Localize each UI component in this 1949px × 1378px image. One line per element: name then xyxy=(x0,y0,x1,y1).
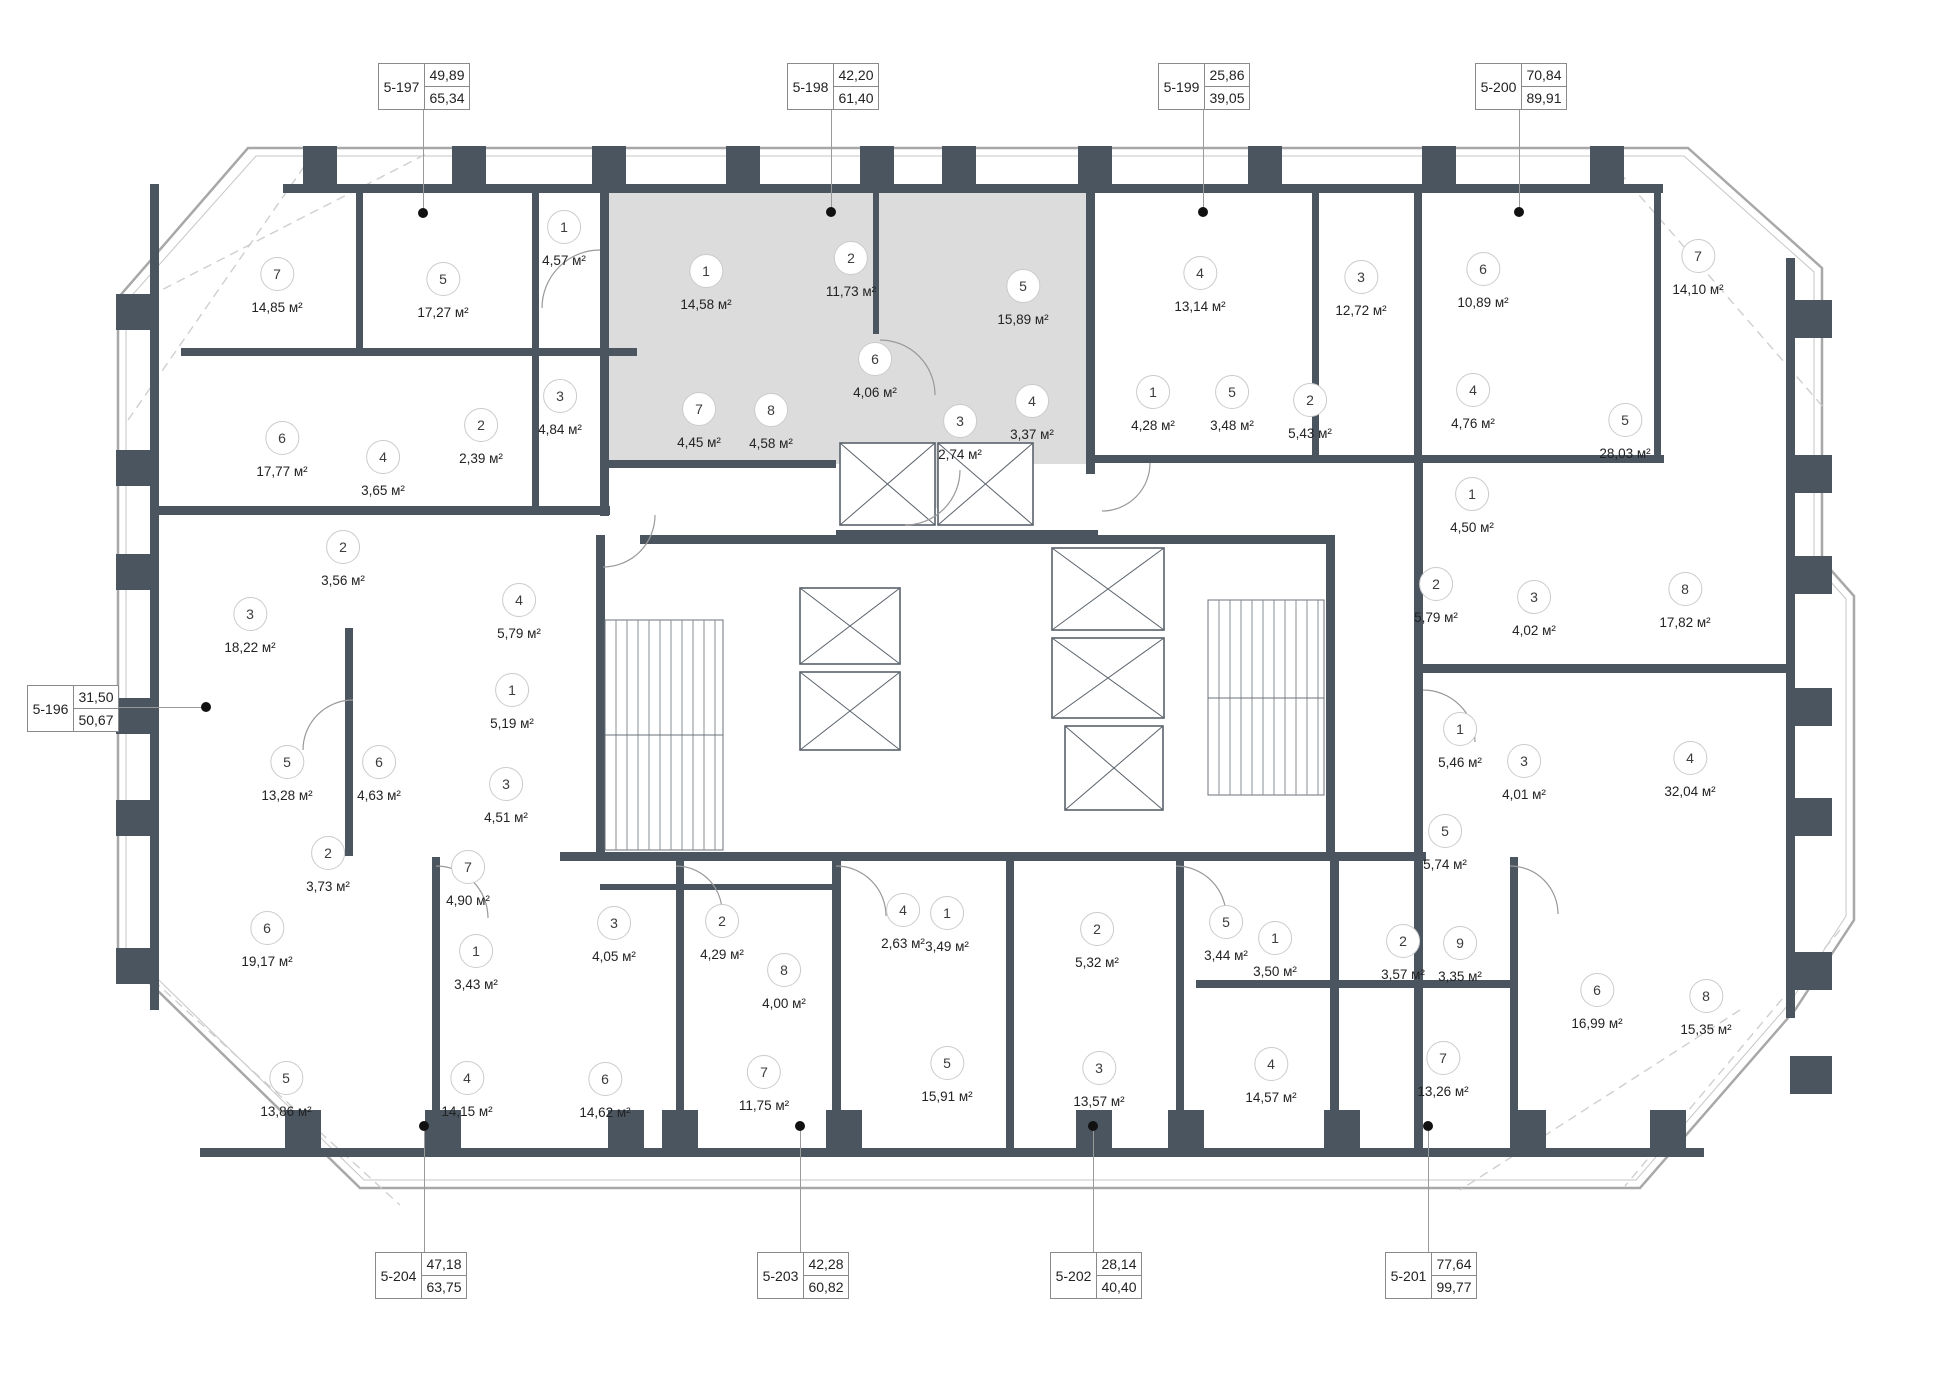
unit-leader-line xyxy=(1093,1126,1094,1252)
unit-leader-dot xyxy=(1088,1121,1098,1131)
unit-area-living: 77,64 xyxy=(1432,1253,1476,1276)
unit-id: 5-202 xyxy=(1051,1253,1097,1298)
unit-leader-dot xyxy=(826,207,836,217)
unit-area-living: 42,28 xyxy=(804,1253,848,1276)
unit-leader-line xyxy=(1203,110,1204,212)
unit-leader-line xyxy=(1428,1126,1429,1252)
unit-leader-line xyxy=(800,1126,801,1252)
unit-tag-5-200[interactable]: 5-20070,8489,91 xyxy=(1475,63,1567,110)
unit-tag-5-203[interactable]: 5-20342,2860,82 xyxy=(757,1252,849,1299)
unit-area-living: 31,50 xyxy=(74,686,118,709)
unit-leader-line xyxy=(119,707,206,708)
unit-leader-dot xyxy=(419,1121,429,1131)
unit-leader-dot xyxy=(1423,1121,1433,1131)
floor-plan: 714,85 м²517,27 м²14,57 м²34,84 м²22,39 … xyxy=(0,0,1949,1378)
unit-leader-dot xyxy=(1198,207,1208,217)
unit-area-total: 65,34 xyxy=(425,87,469,109)
unit-area-total: 61,40 xyxy=(834,87,878,109)
unit-tag-5-197[interactable]: 5-19749,8965,34 xyxy=(378,63,470,110)
unit-tag-5-201[interactable]: 5-20177,6499,77 xyxy=(1385,1252,1477,1299)
unit-area-total: 63,75 xyxy=(422,1276,466,1298)
unit-area-total: 60,82 xyxy=(804,1276,848,1298)
unit-id: 5-197 xyxy=(379,64,425,109)
unit-tag-5-199[interactable]: 5-19925,8639,05 xyxy=(1158,63,1250,110)
unit-id: 5-199 xyxy=(1159,64,1205,109)
unit-area-living: 25,86 xyxy=(1205,64,1249,87)
unit-area-living: 28,14 xyxy=(1097,1253,1141,1276)
stairs xyxy=(605,600,1324,850)
unit-id: 5-203 xyxy=(758,1253,804,1298)
unit-id: 5-201 xyxy=(1386,1253,1432,1298)
unit-tag-5-198[interactable]: 5-19842,2061,40 xyxy=(787,63,879,110)
unit-leader-dot xyxy=(418,208,428,218)
unit-leader-dot xyxy=(1514,207,1524,217)
unit-id: 5-198 xyxy=(788,64,834,109)
unit-area-total: 50,67 xyxy=(74,709,118,731)
unit-tag-5-202[interactable]: 5-20228,1440,40 xyxy=(1050,1252,1142,1299)
unit-leader-dot xyxy=(795,1121,805,1131)
unit-leader-line xyxy=(831,110,832,212)
unit-area-total: 39,05 xyxy=(1205,87,1249,109)
unit-leader-dot xyxy=(201,702,211,712)
unit-area-total: 99,77 xyxy=(1432,1276,1476,1298)
unit-leader-line xyxy=(424,1126,425,1252)
unit-area-total: 89,91 xyxy=(1522,87,1566,109)
unit-area-total: 40,40 xyxy=(1097,1276,1141,1298)
unit-area-living: 47,18 xyxy=(422,1253,466,1276)
unit-id: 5-200 xyxy=(1476,64,1522,109)
unit-tag-5-204[interactable]: 5-20447,1863,75 xyxy=(375,1252,467,1299)
unit-id: 5-196 xyxy=(28,686,74,731)
unit-tag-5-196[interactable]: 5-19631,5050,67 xyxy=(27,685,119,732)
floor-plan-drawing xyxy=(0,0,1949,1378)
unit-area-living: 42,20 xyxy=(834,64,878,87)
unit-area-living: 70,84 xyxy=(1522,64,1566,87)
unit-leader-line xyxy=(423,110,424,213)
unit-leader-line xyxy=(1519,110,1520,212)
elevator-shafts xyxy=(800,443,1164,810)
unit-id: 5-204 xyxy=(376,1253,422,1298)
unit-area-living: 49,89 xyxy=(425,64,469,87)
